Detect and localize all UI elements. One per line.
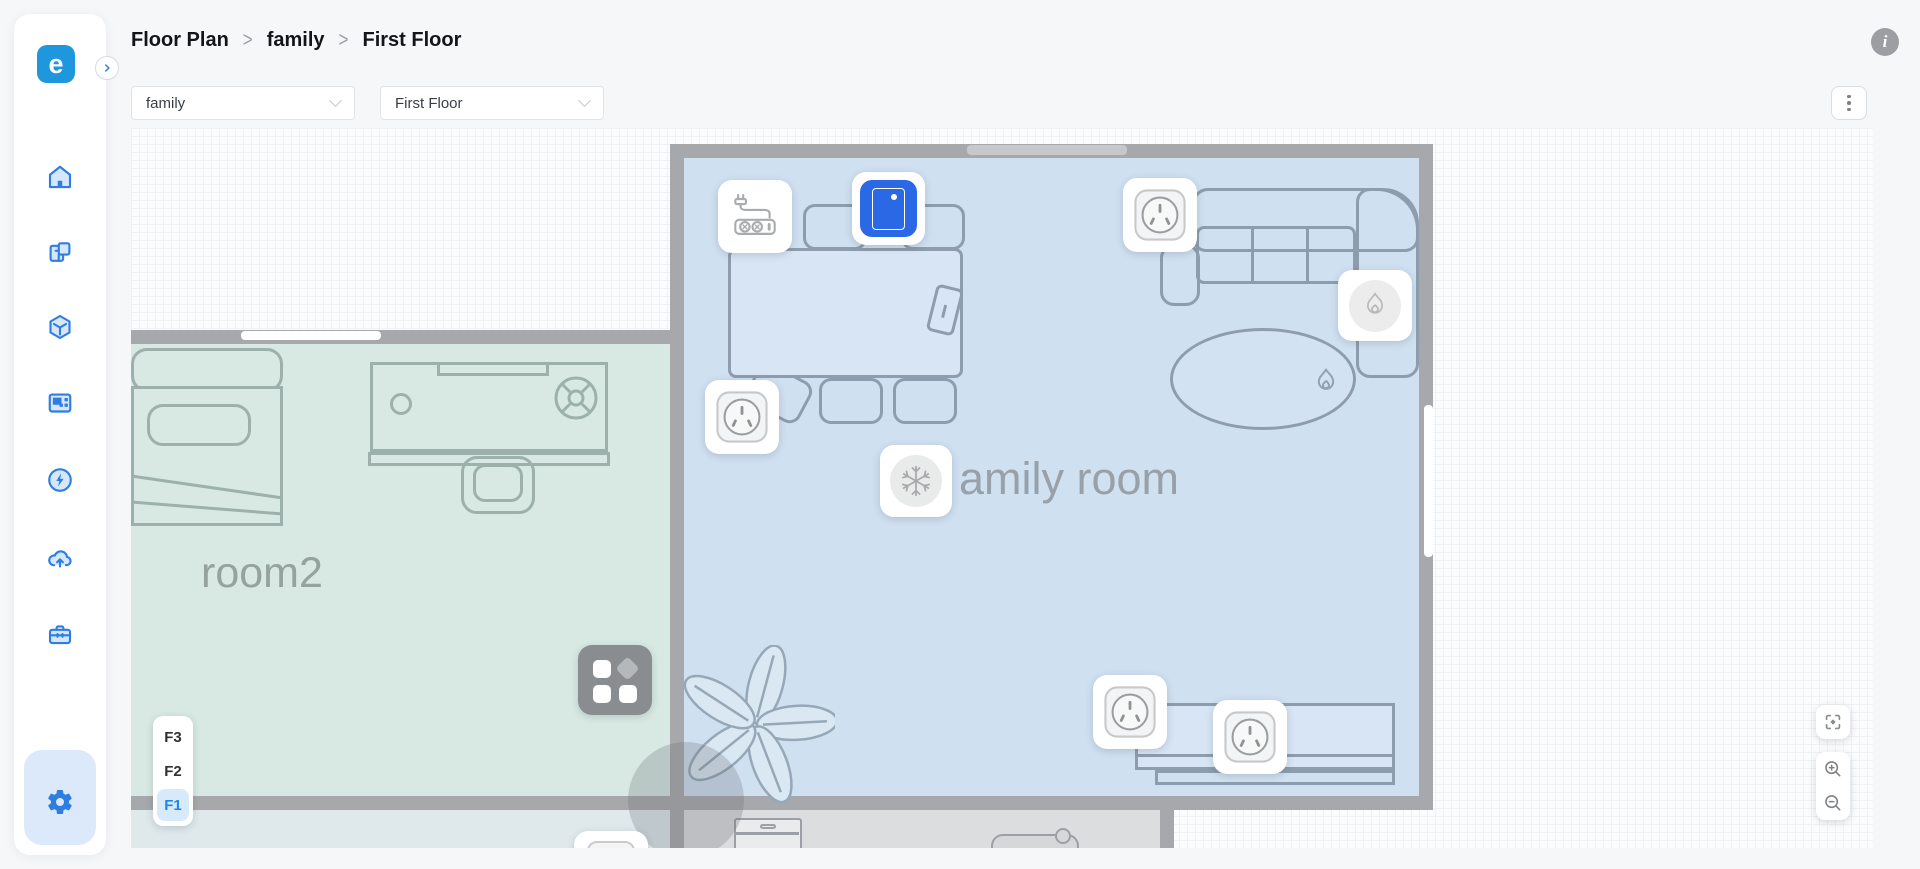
bed-blanket-fold [131, 458, 283, 528]
device-air-conditioner[interactable] [880, 445, 952, 517]
sidebar-item-settings[interactable] [24, 750, 96, 845]
sidebar-collapse-button[interactable] [95, 56, 119, 80]
chevron-down-icon [578, 94, 591, 107]
floor-select-value: First Floor [395, 95, 463, 112]
floor-button-f1[interactable]: F1 [157, 789, 189, 821]
device-heater[interactable] [1338, 270, 1412, 341]
device-card-partial[interactable] [574, 831, 648, 848]
dashboard-icon [45, 388, 75, 418]
home-icon [45, 162, 75, 192]
sidebar-item-floor-plan[interactable] [45, 237, 75, 267]
wall [1160, 810, 1174, 848]
floor-button-f2[interactable]: F2 [157, 755, 189, 787]
device-scene-switch[interactable] [578, 645, 652, 715]
breadcrumb: Floor Plan > family > First Floor [131, 20, 461, 60]
gear-icon [45, 787, 75, 817]
app-logo-letter: e [48, 49, 63, 80]
zoom-controls [1816, 752, 1850, 820]
wall [131, 330, 684, 344]
breadcrumb-floor-plan[interactable]: Floor Plan [131, 29, 229, 52]
device-wall-panel[interactable] [852, 172, 925, 245]
sidebar-item-cloud-upload[interactable] [45, 543, 75, 573]
bed-pillow [147, 404, 251, 446]
device-socket[interactable] [705, 380, 779, 454]
socket-icon [711, 386, 773, 448]
dining-chair [893, 378, 957, 424]
sofa-seat [1196, 226, 1356, 284]
socket-icon [1099, 681, 1161, 743]
socket-icon [1129, 184, 1191, 246]
breadcrumb-separator: > [339, 28, 349, 53]
room-label-family-room: amily room [959, 456, 1179, 501]
flame-icon [1355, 286, 1395, 326]
device-socket[interactable] [1213, 700, 1287, 774]
home-select[interactable]: family [131, 86, 355, 120]
toolbox-icon [45, 619, 75, 649]
fit-to-screen-button[interactable] [1816, 705, 1850, 739]
sidebar-item-energy[interactable] [45, 465, 75, 495]
desk-cup [390, 393, 412, 415]
sidebar-item-home[interactable] [45, 162, 75, 192]
energy-icon [45, 465, 75, 495]
breadcrumb-separator: > [243, 28, 253, 53]
sofa-cushion-divider [1251, 228, 1254, 282]
app-logo: e [37, 45, 75, 83]
device-socket[interactable] [1123, 178, 1197, 252]
room-label-room2: room2 [201, 552, 323, 595]
info-icon[interactable]: i [1871, 28, 1899, 56]
floor-plan-icon [45, 237, 75, 267]
sidebar: e [14, 14, 106, 855]
desk-fan [552, 374, 600, 422]
breadcrumb-family[interactable]: family [267, 29, 325, 52]
chevron-right-icon [99, 60, 115, 76]
socket-icon [1219, 706, 1281, 768]
home-select-value: family [146, 95, 185, 112]
window-marker [967, 145, 1127, 155]
round-rug [628, 742, 744, 848]
more-options-button[interactable] [1831, 86, 1867, 120]
zoom-in-icon [1822, 758, 1844, 780]
sidebar-item-dashboard[interactable] [45, 388, 75, 418]
device-socket[interactable] [1093, 675, 1167, 749]
fit-screen-icon [1822, 711, 1844, 733]
sidebar-item-spaces-3d[interactable] [45, 312, 75, 342]
washing-machine [734, 818, 802, 848]
desk-notch [437, 362, 549, 376]
zoom-out-button[interactable] [1816, 786, 1850, 820]
scene-grid-icon [578, 645, 652, 715]
door-marker [1424, 405, 1433, 557]
device-power-strip[interactable] [718, 180, 792, 253]
sofa-armrest [1160, 244, 1200, 306]
breadcrumb-first-floor[interactable]: First Floor [362, 29, 461, 52]
sidebar-item-toolbox[interactable] [45, 619, 75, 649]
cube-3d-icon [45, 312, 75, 342]
table-flame-decor [1306, 360, 1346, 404]
wall-panel-icon [860, 180, 917, 237]
desk-chair-seat [473, 464, 523, 502]
snowflake-icon [897, 462, 935, 500]
floor-plan-canvas[interactable]: room2 amily room [131, 128, 1873, 848]
dining-chair [819, 378, 883, 424]
floor-switcher: F3 F2 F1 [153, 716, 193, 826]
cloud-upload-icon [45, 543, 75, 573]
door-marker [241, 331, 381, 340]
zoom-out-icon [1822, 792, 1844, 814]
zoom-in-button[interactable] [1816, 752, 1850, 786]
floor-button-f3[interactable]: F3 [157, 721, 189, 753]
power-strip-icon [728, 190, 782, 244]
chevron-down-icon [329, 94, 342, 107]
dining-table [728, 248, 963, 378]
sofa-cushion-divider [1306, 228, 1309, 282]
sink [991, 834, 1079, 848]
floor-select[interactable]: First Floor [380, 86, 604, 120]
